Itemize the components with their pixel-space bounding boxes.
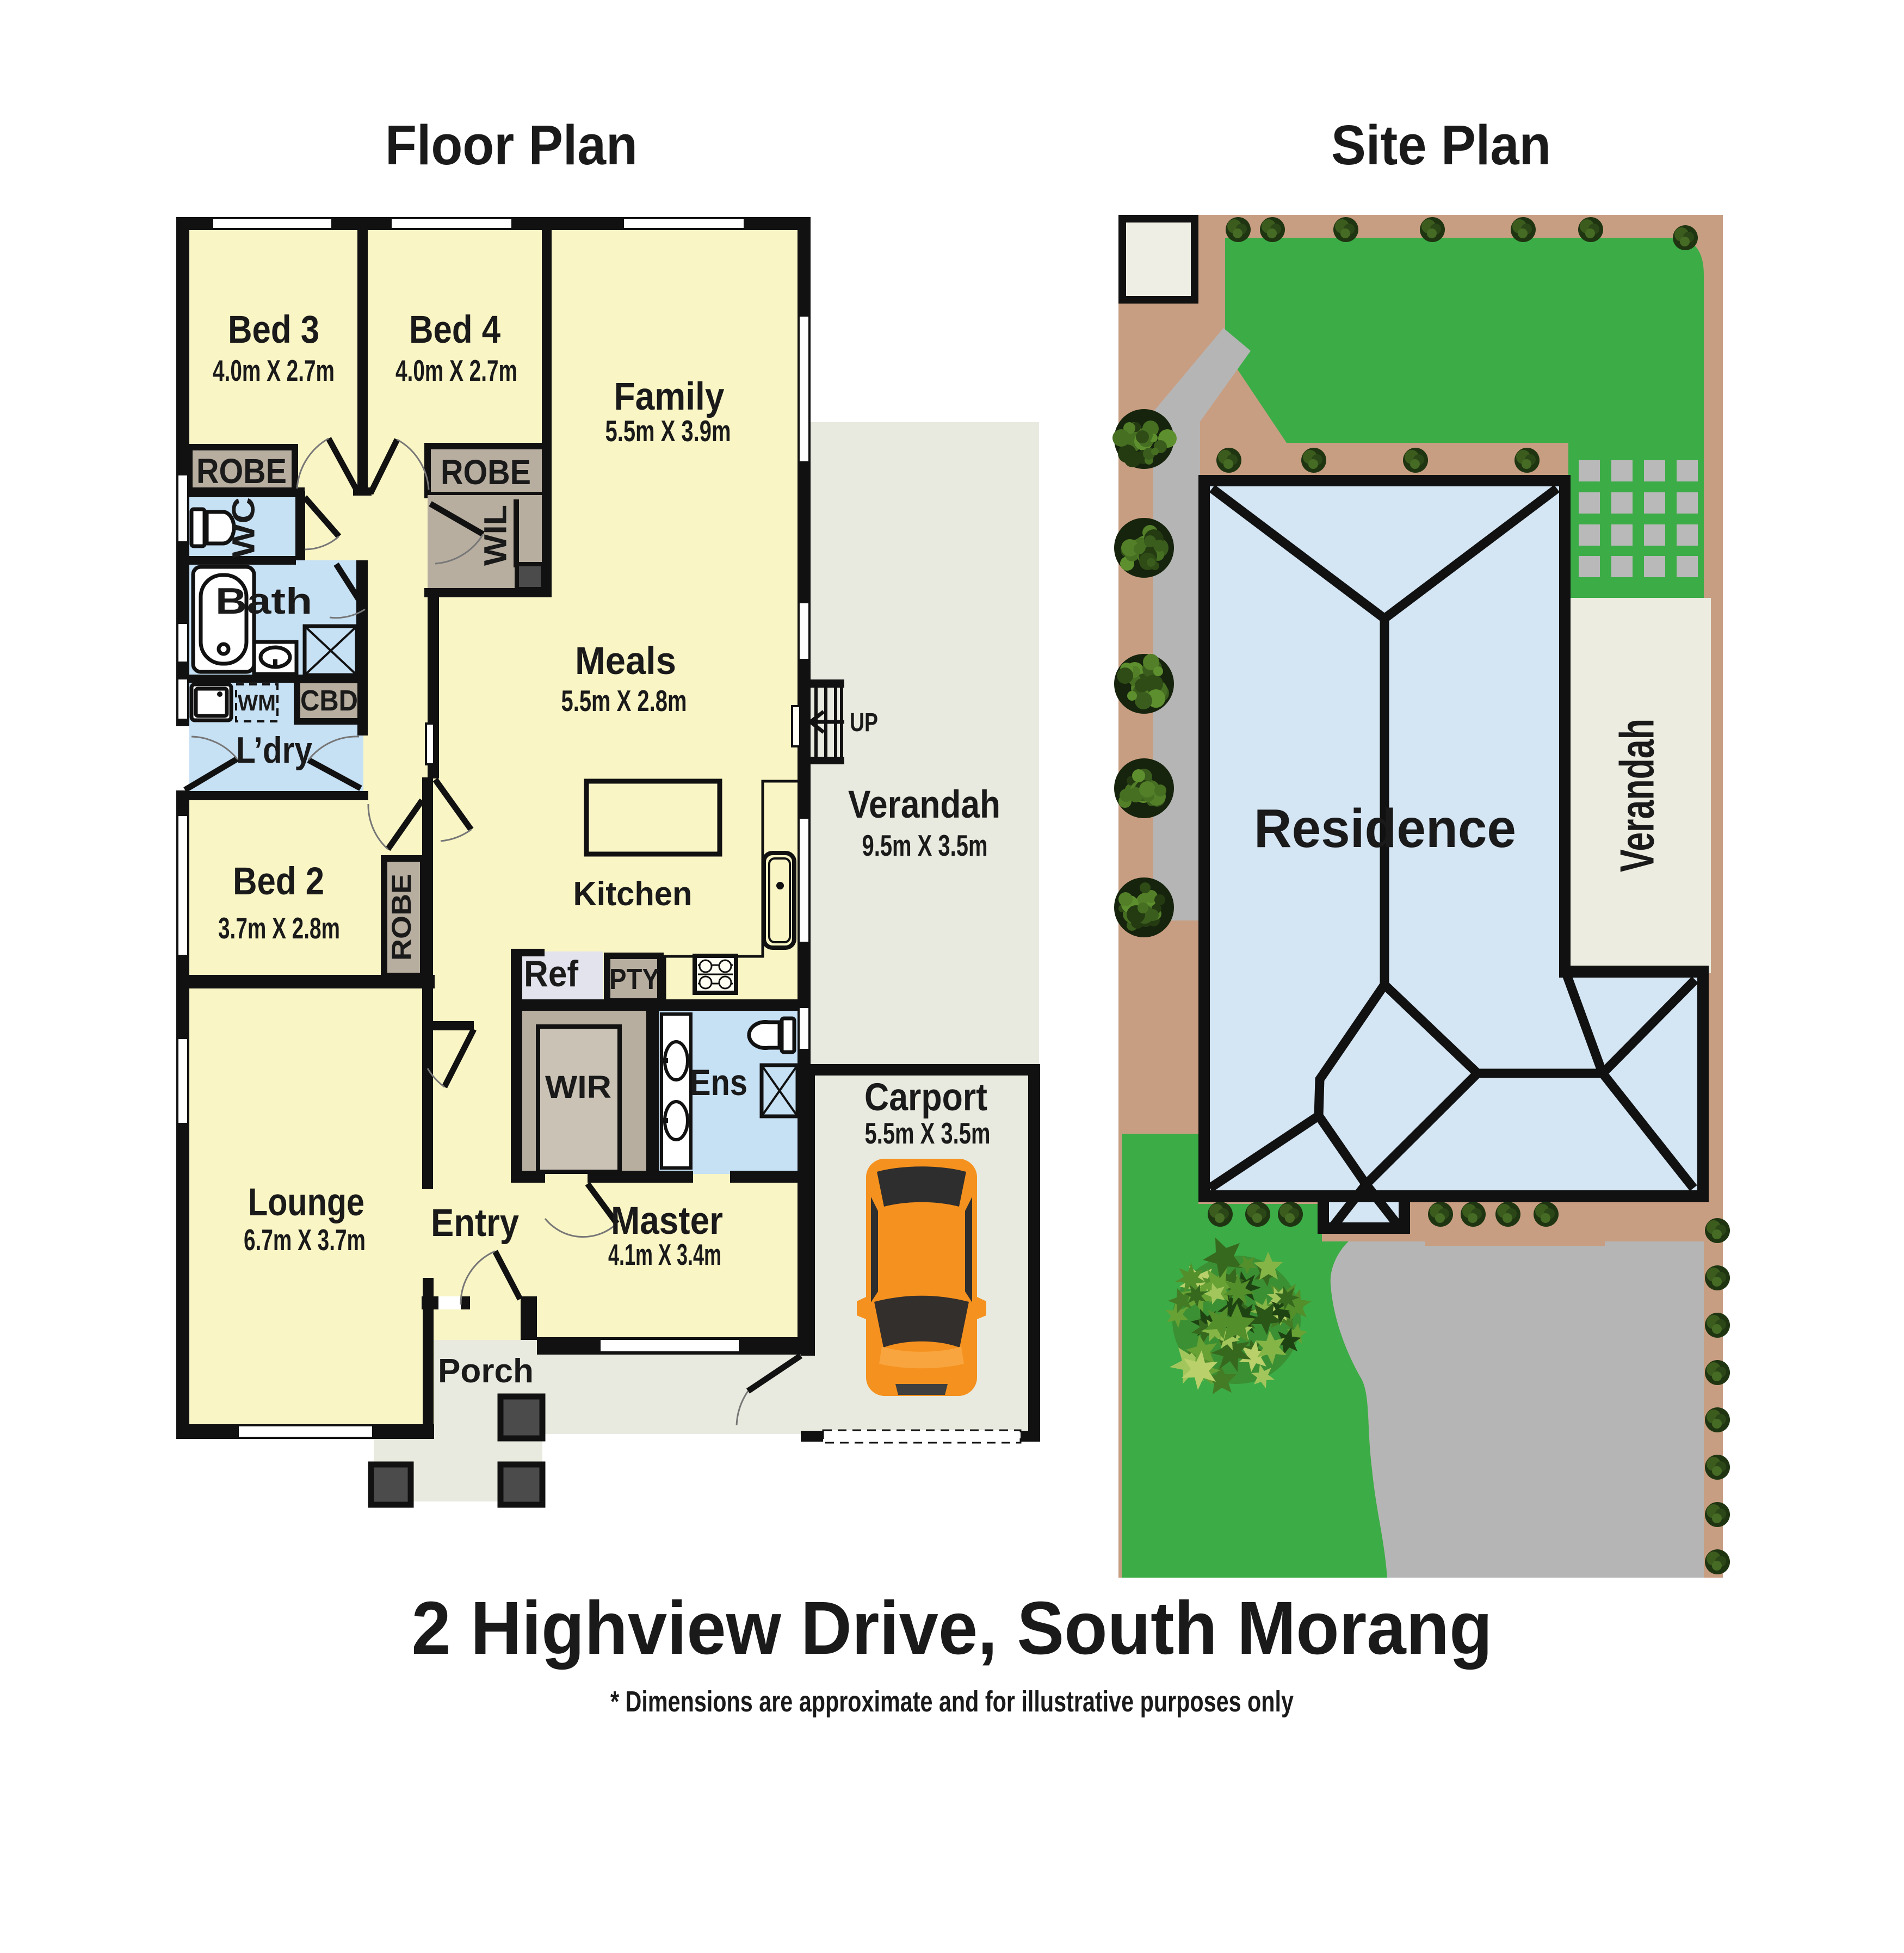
svg-text:Master: Master [611, 1200, 723, 1243]
svg-text:WM: WM [238, 690, 276, 715]
svg-text:WC: WC [226, 497, 261, 558]
svg-text:Family: Family [614, 375, 725, 418]
svg-text:WIL: WIL [478, 505, 513, 566]
svg-text:Ens: Ens [690, 1062, 747, 1103]
svg-text:5.5m X 3.5m: 5.5m X 3.5m [865, 1116, 991, 1150]
svg-text:Bed 4: Bed 4 [409, 308, 500, 351]
svg-text:Residence: Residence [1254, 798, 1516, 859]
svg-text:Lounge: Lounge [248, 1181, 364, 1224]
svg-text:CBD: CBD [300, 684, 358, 717]
svg-text:4.1m X 3.4m: 4.1m X 3.4m [608, 1238, 721, 1271]
svg-text:Site Plan: Site Plan [1331, 114, 1551, 176]
svg-text:5.5m X 3.9m: 5.5m X 3.9m [605, 414, 731, 448]
svg-text:L’dry: L’dry [236, 730, 312, 771]
svg-text:Verandah: Verandah [848, 783, 1000, 826]
svg-text:Entry: Entry [431, 1202, 519, 1245]
svg-text:Bed 2: Bed 2 [233, 860, 324, 903]
svg-text:ROBE: ROBE [196, 452, 287, 491]
svg-text:4.0m X 2.7m: 4.0m X 2.7m [395, 354, 517, 387]
svg-text:4.0m X 2.7m: 4.0m X 2.7m [213, 354, 335, 387]
svg-text:* Dimensions are approximate a: * Dimensions are approximate and for ill… [610, 1685, 1294, 1718]
svg-text:3.7m X 2.8m: 3.7m X 2.8m [218, 911, 340, 945]
svg-text:ROBE: ROBE [441, 453, 531, 492]
svg-text:6.7m X 3.7m: 6.7m X 3.7m [244, 1223, 366, 1257]
svg-text:Floor Plan: Floor Plan [385, 114, 638, 176]
svg-text:WIR: WIR [545, 1070, 611, 1105]
svg-text:Verandah: Verandah [1610, 719, 1664, 872]
svg-text:Bath: Bath [215, 580, 312, 622]
svg-text:9.5m X 3.5m: 9.5m X 3.5m [862, 829, 988, 862]
svg-text:Porch: Porch [438, 1352, 534, 1390]
svg-text:Bed 3: Bed 3 [228, 308, 319, 351]
svg-text:2 Highview Drive, South Morang: 2 Highview Drive, South Morang [412, 1586, 1493, 1670]
svg-text:ROBE: ROBE [386, 874, 417, 961]
svg-text:Meals: Meals [575, 640, 676, 683]
svg-text:PTY: PTY [609, 963, 659, 996]
svg-text:Ref: Ref [524, 953, 578, 994]
svg-text:UP: UP [850, 708, 878, 737]
svg-text:Kitchen: Kitchen [573, 875, 693, 913]
svg-text:5.5m X 2.8m: 5.5m X 2.8m [561, 684, 687, 718]
svg-text:Carport: Carport [864, 1076, 987, 1119]
